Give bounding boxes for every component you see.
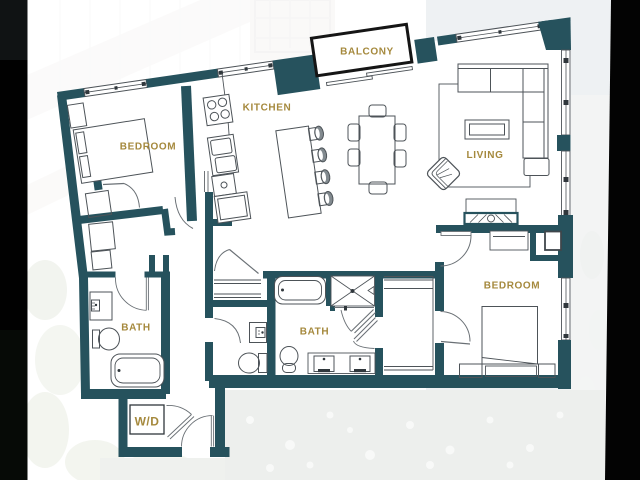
svg-text:BATH: BATH — [121, 323, 150, 334]
svg-text:LIVING: LIVING — [467, 150, 504, 161]
svg-text:BEDROOM: BEDROOM — [120, 142, 176, 153]
svg-text:KITCHEN: KITCHEN — [243, 103, 292, 114]
svg-text:BATH: BATH — [300, 327, 329, 338]
svg-text:W/D: W/D — [135, 415, 160, 429]
svg-text:BEDROOM: BEDROOM — [484, 281, 540, 292]
svg-text:BALCONY: BALCONY — [340, 47, 394, 58]
